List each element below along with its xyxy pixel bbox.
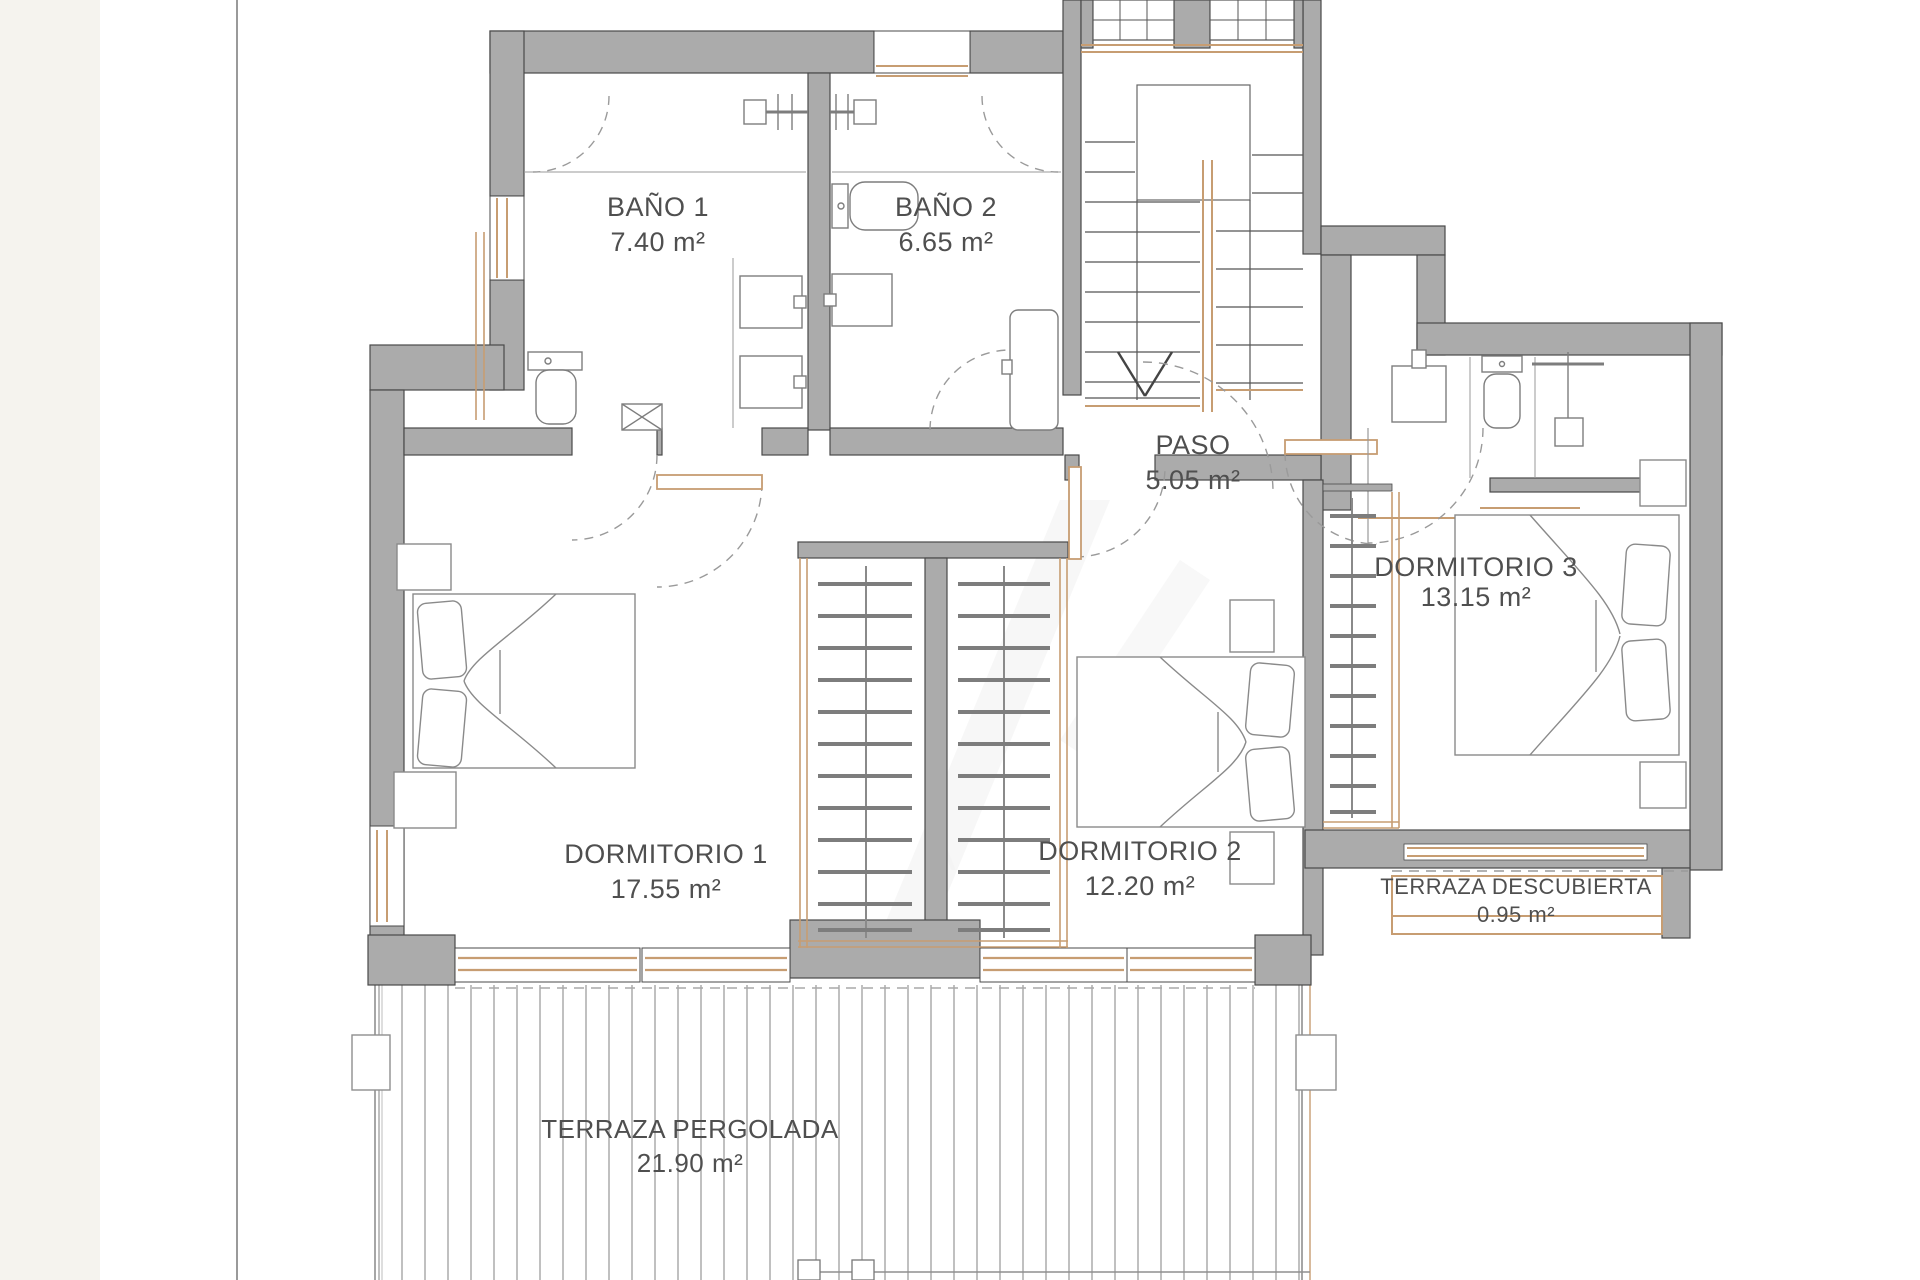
label-bano-2: BAÑO 2 6.65 m²: [895, 190, 997, 260]
bed-dormitorio-3: [1455, 460, 1686, 808]
staircase: [1085, 85, 1303, 412]
room-name: PASO: [1145, 428, 1240, 463]
label-dormitorio-1: DORMITORIO 1 17.55 m²: [564, 837, 768, 907]
ensuite-fixtures: [1392, 350, 1604, 478]
room-area: 6.65 m²: [895, 225, 997, 260]
room-area: 5.05 m²: [1145, 463, 1240, 498]
beds: [394, 460, 1686, 884]
shower-head-symbol: [1532, 352, 1604, 446]
room-area: 12.20 m²: [1038, 869, 1242, 904]
room-name: TERRAZA DESCUBIERTA: [1380, 873, 1652, 901]
room-name: BAÑO 2: [895, 190, 997, 225]
bathtub-symbol: [1002, 310, 1058, 430]
room-name: DORMITORIO 3: [1374, 552, 1578, 582]
washbasin-symbol: [824, 274, 892, 326]
label-dormitorio-2: DORMITORIO 2 12.20 m²: [1038, 834, 1242, 904]
room-name: TERRAZA PERGOLADA: [541, 1112, 838, 1146]
room-area: 13.15 m²: [1374, 582, 1578, 612]
bed-dormitorio-1: [394, 544, 635, 828]
pergola-slats: [352, 985, 1336, 1280]
label-bano-1: BAÑO 1 7.40 m²: [607, 190, 709, 260]
room-name: DORMITORIO 2: [1038, 834, 1242, 869]
label-paso: PASO 5.05 m²: [1145, 428, 1240, 498]
room-area: 7.40 m²: [607, 225, 709, 260]
label-terraza-descubierta: TERRAZA DESCUBIERTA 0.95 m²: [1380, 873, 1652, 929]
room-name: DORMITORIO 1: [564, 837, 768, 872]
vent-symbol: [622, 404, 662, 430]
room-area: 17.55 m²: [564, 872, 768, 907]
room-area: 0.95 m²: [1380, 901, 1652, 929]
room-area: 21.90 m²: [541, 1146, 838, 1180]
room-name: BAÑO 1: [607, 190, 709, 225]
floor-plan-page: A: [0, 0, 1920, 1280]
stair-direction-arrow: [1118, 352, 1172, 396]
wardrobe-dorm3: [1323, 484, 1399, 828]
label-terraza-pergolada: TERRAZA PERGOLADA 21.90 m²: [541, 1112, 838, 1180]
washbasin-symbol: [733, 258, 806, 428]
label-dormitorio-3: DORMITORIO 3 13.15 m²: [1374, 552, 1578, 612]
toilet-symbol: [528, 352, 582, 424]
